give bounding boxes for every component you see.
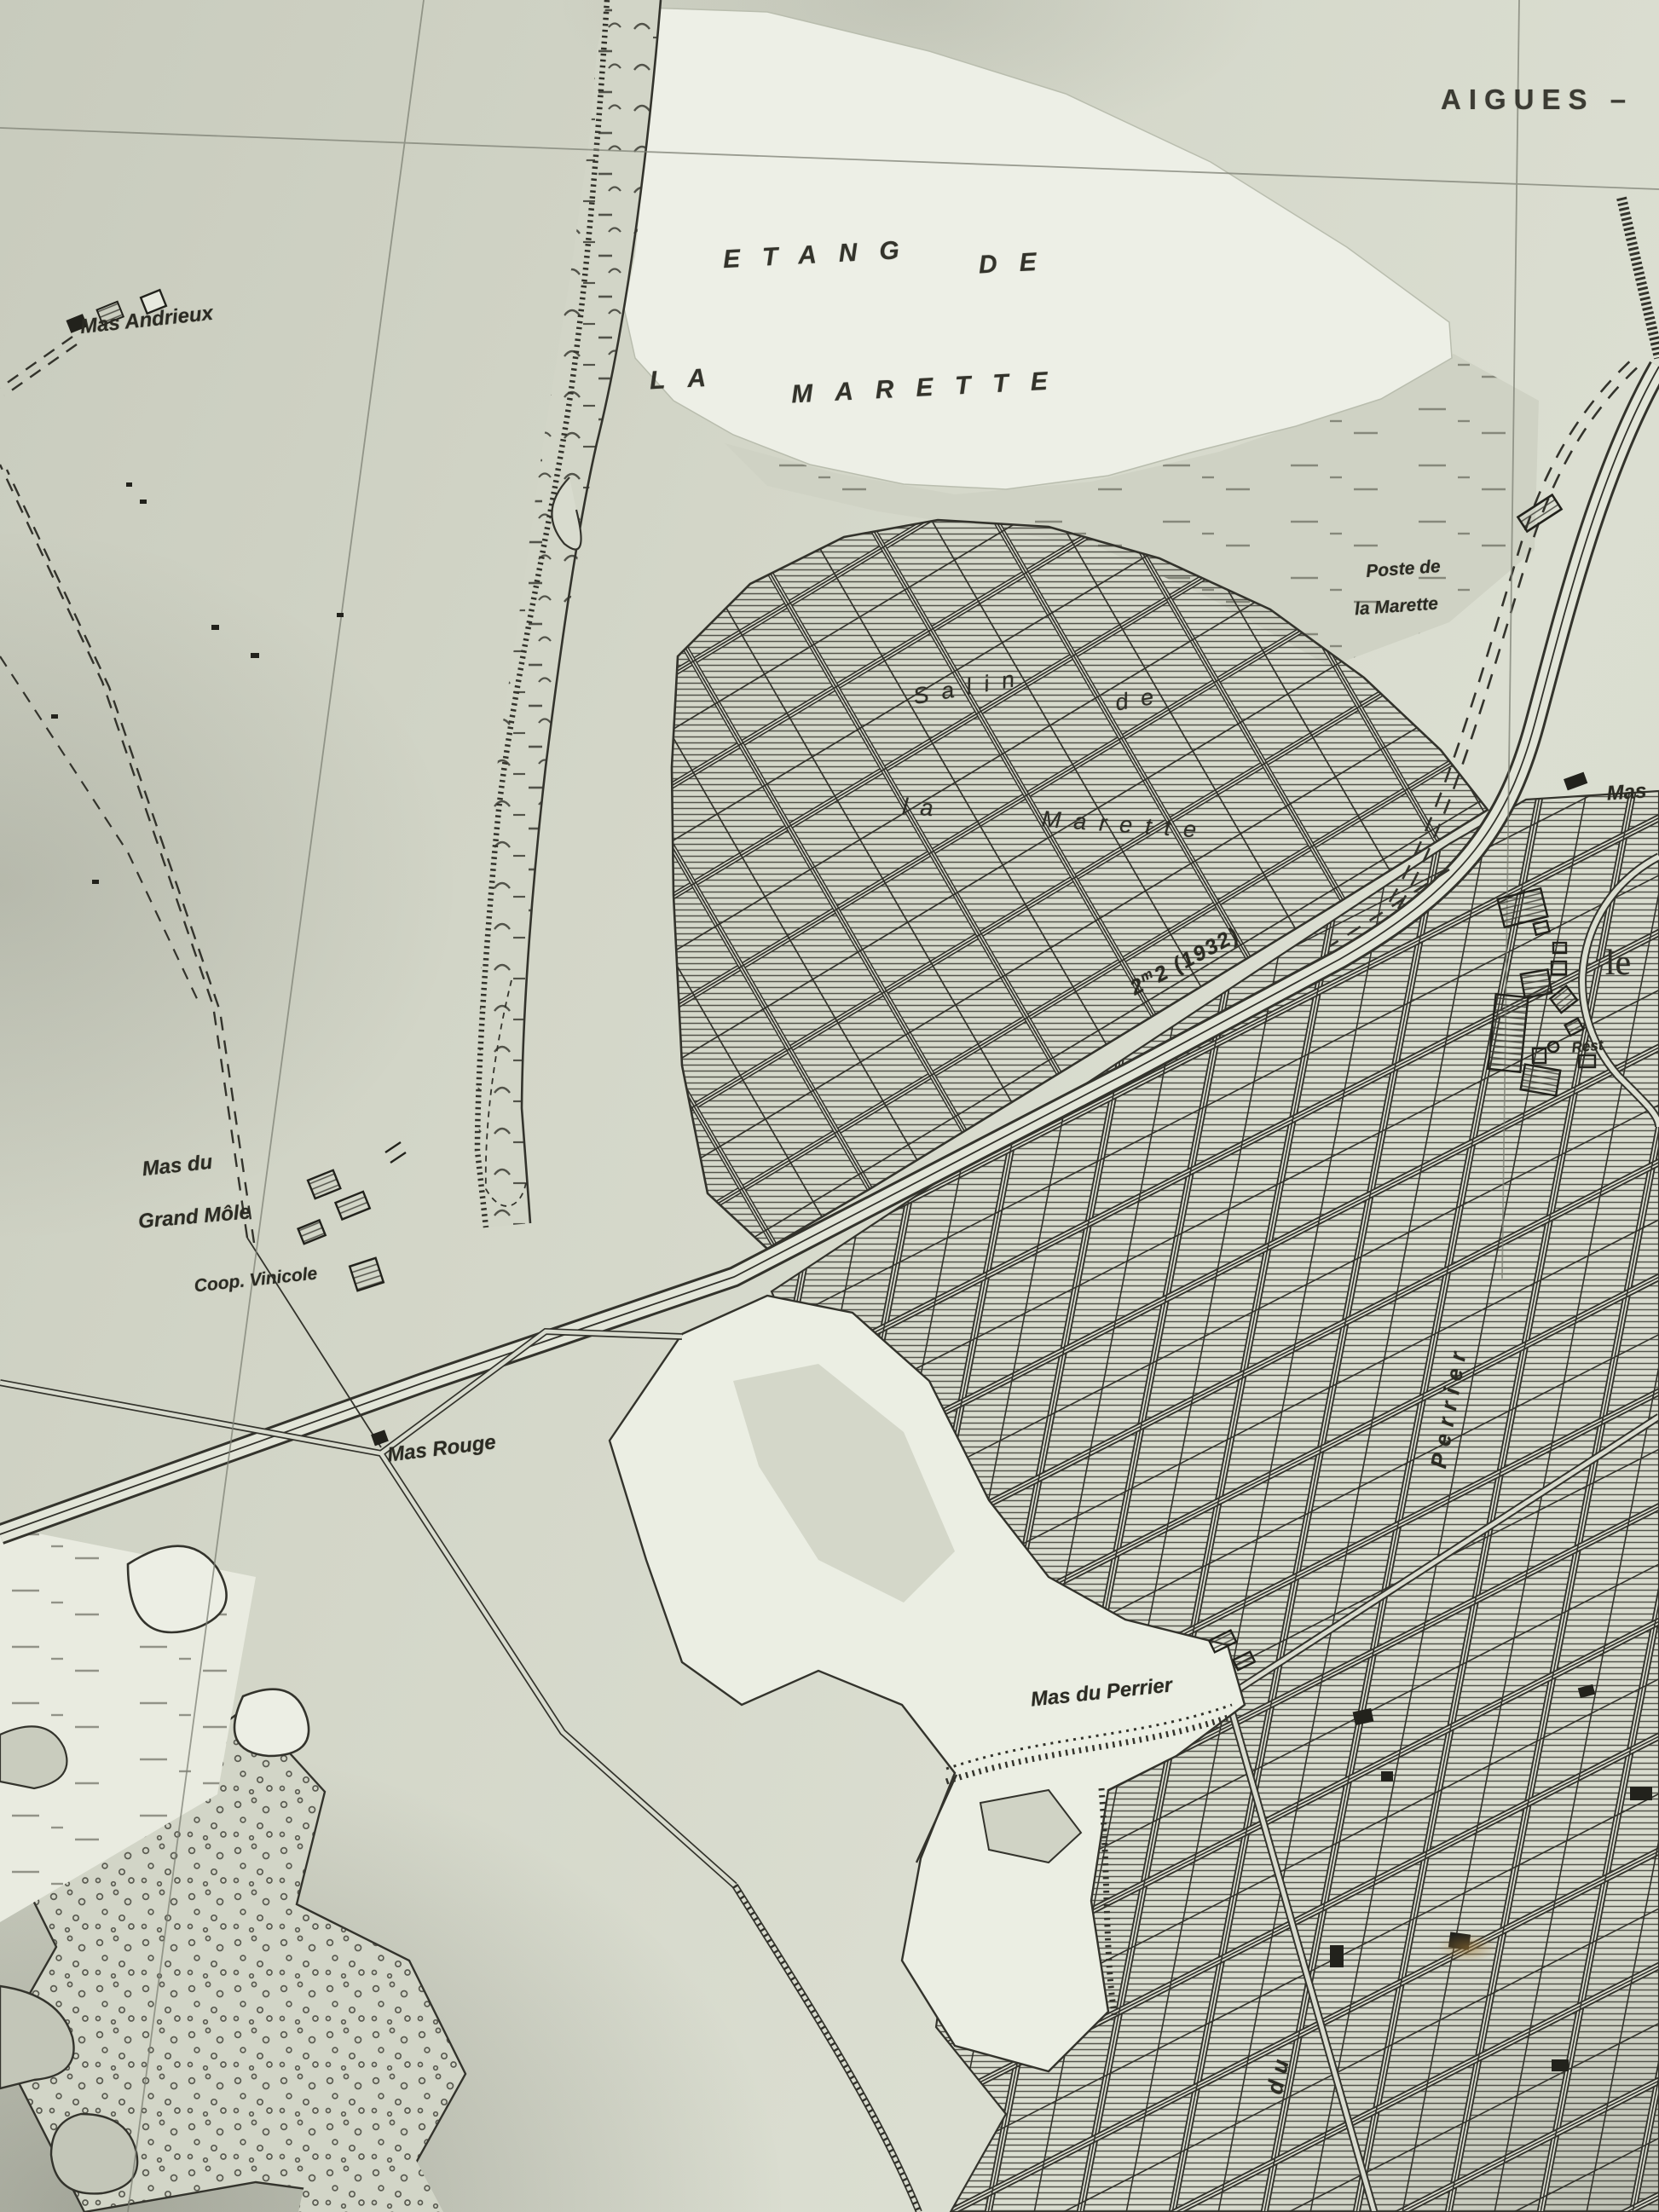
paper-stain [1437, 1933, 1497, 1962]
label-mas-right-edge: Mas [1606, 779, 1648, 806]
map-linework [0, 0, 1659, 2212]
map-photo: AIGUES – ETANG DE LA MARETTE Mas Andrieu… [0, 0, 1659, 2212]
sheet-title: AIGUES – [1441, 84, 1633, 116]
label-etang-word3: LA [649, 363, 729, 396]
label-village-partial: le [1605, 943, 1631, 984]
canal-strip [477, 0, 661, 1227]
embankment-topright [1621, 198, 1659, 358]
label-salin-word3: la [901, 794, 946, 823]
label-etang-word2: DE [978, 247, 1059, 280]
label-restaurant: Rést [1571, 1037, 1604, 1056]
